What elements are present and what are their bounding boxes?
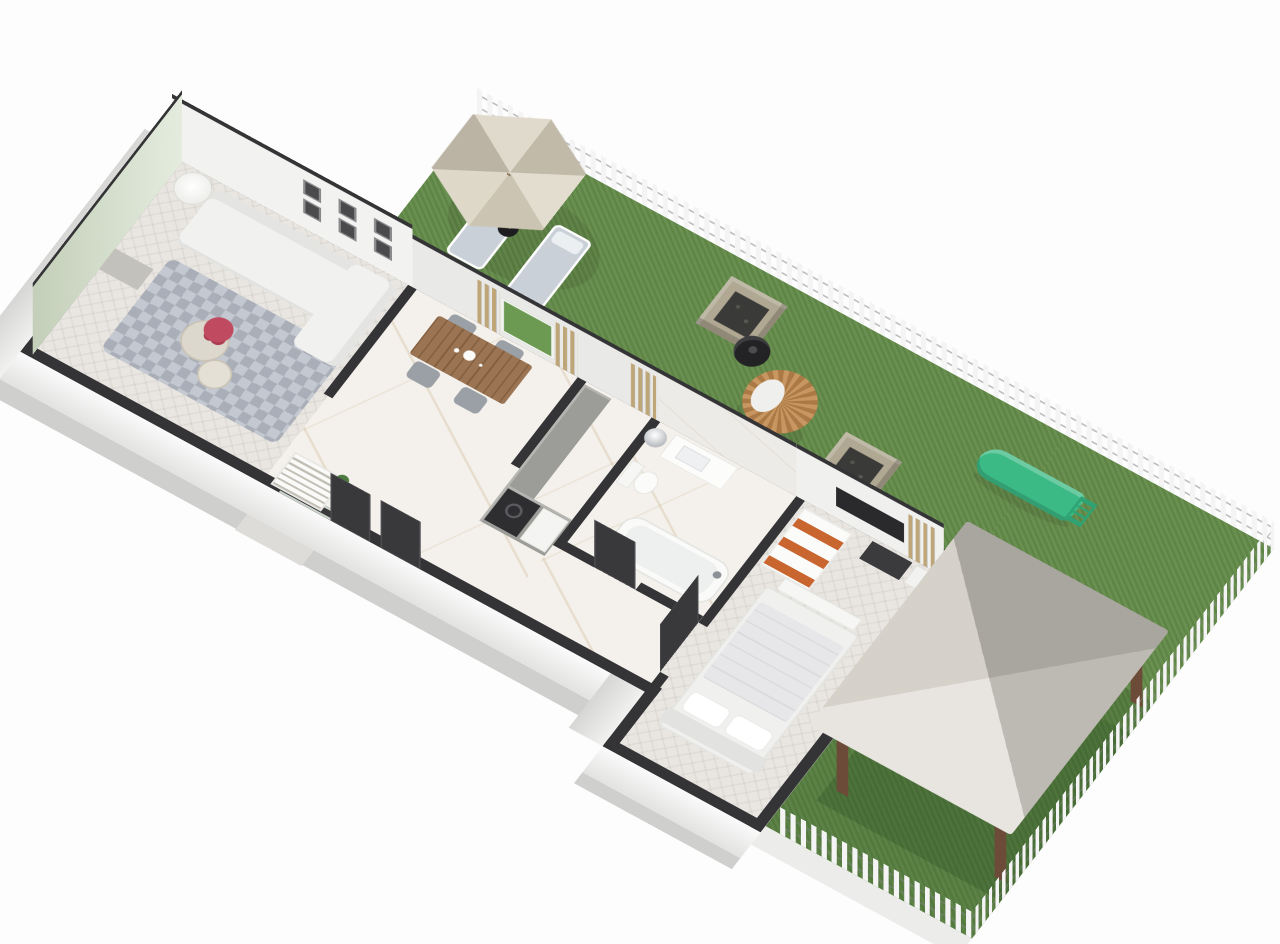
floorplan-render xyxy=(0,0,1280,944)
floorplan-3d-scene xyxy=(0,10,1274,944)
